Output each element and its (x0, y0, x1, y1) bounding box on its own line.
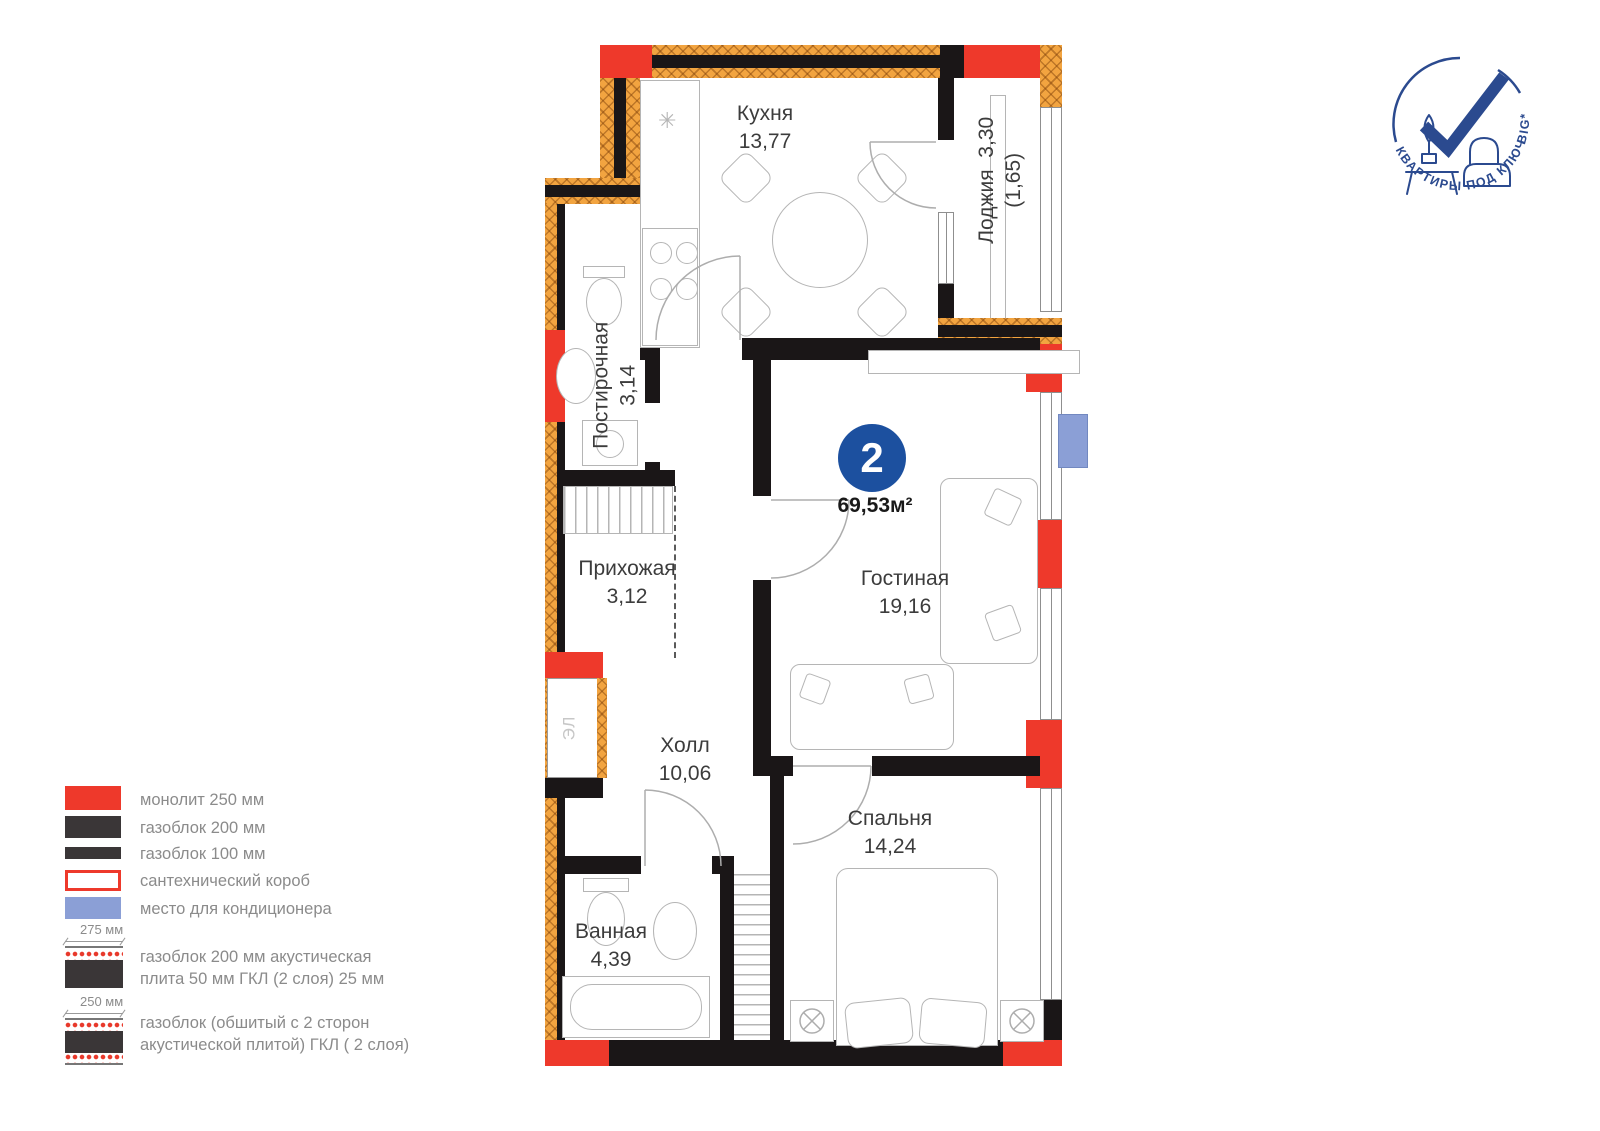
wall-block (753, 756, 793, 776)
shaft-label: ЭЛ (559, 716, 579, 741)
dimension-tick (120, 1010, 126, 1018)
room-label-loggia: Лоджия 3,30 (1,65) (930, 100, 1070, 260)
legend-swatch-ac (65, 897, 121, 919)
wall-block (872, 756, 1040, 776)
wall-monolith (545, 1040, 609, 1066)
dimension-line (65, 941, 123, 942)
toilet-tank (583, 266, 625, 278)
sink-icon: ✳ (658, 108, 676, 134)
ac-unit-spot (1058, 414, 1088, 468)
chair (854, 150, 911, 207)
wall-monolith (1003, 1040, 1062, 1066)
living-window-2 (1040, 588, 1062, 720)
room-label-hall: Холл10,06 (615, 732, 755, 789)
legend-label: газоблок 200 мм (140, 817, 266, 839)
wall-block (770, 776, 784, 858)
wall-block (557, 856, 641, 874)
logo-brand-text: BIG* (1514, 112, 1532, 146)
chair (854, 284, 911, 341)
wall-monolith (964, 45, 1040, 78)
wall-block (770, 856, 784, 1040)
pillow (844, 997, 914, 1050)
unit-rooms-badge: 2 (838, 424, 906, 492)
room-label-kitchen: Кухня13,77 (695, 100, 835, 157)
wall-block (545, 778, 603, 798)
duct-shaft (734, 874, 772, 1040)
legend-swatch-acoustic-2 (65, 1018, 123, 1070)
nightstand (790, 1000, 834, 1042)
wall-block (940, 45, 964, 78)
wall-block (720, 856, 734, 1040)
wall-hatched (545, 178, 645, 204)
bedroom-window (1040, 788, 1062, 1000)
room-label-bedroom: Спальня14,24 (815, 805, 965, 862)
stove-burner (676, 278, 698, 300)
dimension-tick (120, 938, 126, 946)
bathtub-inner (570, 984, 702, 1030)
wall-monolith (600, 45, 652, 78)
stove-burner (676, 242, 698, 264)
legend-dim-250: 250 мм (80, 994, 123, 1009)
chair (718, 150, 775, 207)
wall-hatched (600, 78, 640, 178)
brand-logo: КВАРТИРЫ ПОД КЛЮЧ BIG* (1372, 46, 1552, 211)
wall-hatched (597, 678, 607, 778)
dining-table (772, 192, 868, 288)
legend-swatch-gasblock200 (65, 816, 121, 838)
wardrobe (563, 486, 673, 534)
floorplan-page: ЭЛ ✳ (0, 0, 1600, 1131)
room-label-bath: Ванная4,39 (550, 918, 672, 975)
legend-label: газоблок 100 мм (140, 843, 266, 865)
legend-swatch-monolith (65, 786, 121, 810)
wall-block (753, 580, 771, 776)
chair (718, 284, 775, 341)
checkmark-icon (1424, 76, 1504, 149)
legend-label: газоблок (обшитый с 2 сторон акустическо… (140, 1012, 425, 1057)
logo-arc-text: КВАРТИРЫ ПОД КЛЮЧ (1393, 137, 1529, 194)
toilet-tank (583, 878, 629, 892)
legend-label: монолит 250 мм (140, 789, 264, 811)
tv-stand (868, 350, 1080, 374)
room-label-entry: Прихожая3,12 (562, 555, 692, 612)
legend-swatch-plumbing-box (65, 870, 121, 891)
legend-dim-275: 275 мм (80, 922, 123, 937)
pillow (918, 997, 988, 1049)
wall-monolith (545, 652, 603, 678)
legend-swatch-acoustic-1 (65, 946, 123, 988)
wall-monolith (1026, 720, 1062, 788)
nightstand (1000, 1000, 1044, 1042)
legend-label: газоблок 200 мм акустическая плита 50 мм… (140, 946, 408, 991)
legend-swatch-gasblock100 (65, 847, 121, 859)
legend-label: сантехнический короб (140, 870, 310, 892)
room-label-laundry: Постирочная3,14 (553, 295, 677, 475)
unit-total-area: 69,53м² (800, 494, 950, 518)
stove-burner (650, 242, 672, 264)
wall-hatched (652, 45, 940, 78)
wall-hatched (1040, 45, 1062, 107)
room-label-living: Гостиная19,16 (830, 565, 980, 622)
dimension-line (65, 1013, 123, 1014)
wall-block (753, 360, 771, 496)
legend-label: место для кондиционера (140, 898, 332, 920)
